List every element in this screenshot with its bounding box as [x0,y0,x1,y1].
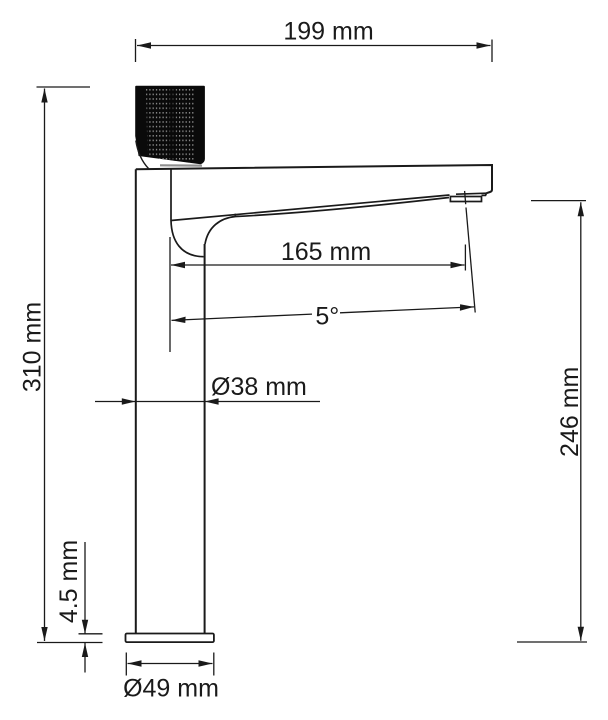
svg-text:165 mm: 165 mm [281,238,371,266]
svg-text:5°: 5° [315,302,339,330]
svg-text:4.5 mm: 4.5 mm [55,540,83,623]
svg-text:310 mm: 310 mm [19,302,47,392]
svg-text:Ø49 mm: Ø49 mm [123,675,219,703]
svg-text:246 mm: 246 mm [556,367,584,457]
svg-text:Ø38 mm: Ø38 mm [211,373,307,401]
svg-text:199 mm: 199 mm [283,18,373,46]
